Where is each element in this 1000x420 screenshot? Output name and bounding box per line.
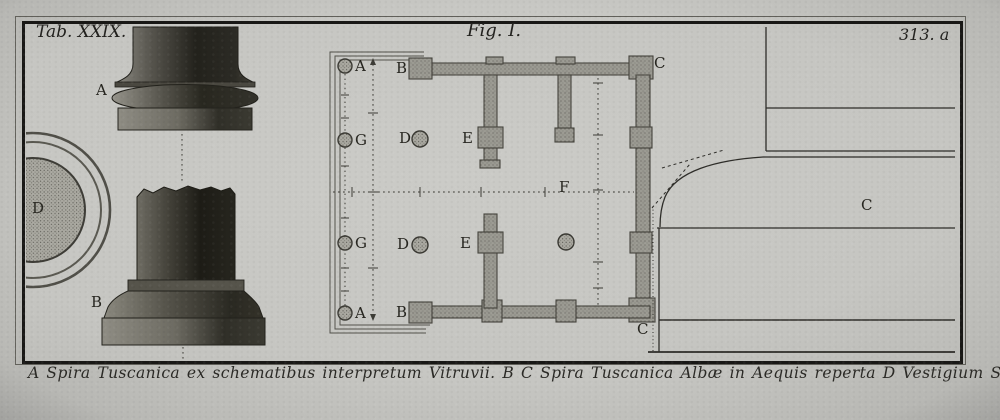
label-column-a: A <box>96 81 107 99</box>
plan-pilaster-top-2 <box>556 57 575 64</box>
label-plan-top-c: C <box>654 54 666 72</box>
plan-pilaster-top-1 <box>486 57 503 64</box>
vestigium-disc-figure <box>0 133 110 287</box>
column-a-shaft <box>115 27 255 83</box>
plan-wall-bottom <box>430 306 650 318</box>
engraving-photo: A B D A B C G D E F G D E A B C C Tab. X… <box>0 0 1000 420</box>
label-plan-d-upper: D <box>399 129 412 147</box>
label-plan-top-a: A <box>355 57 366 75</box>
base-profile-figure <box>648 27 955 352</box>
caption: A Spira Tuscanica ex schematibus interpr… <box>28 364 988 382</box>
column-b-figure <box>102 186 265 360</box>
plan-circle-g-upper <box>338 133 352 147</box>
plate-number: 313. a <box>899 25 949 44</box>
plan-circle-unlabeled <box>558 234 574 250</box>
label-plan-bottom-b: B <box>396 303 408 321</box>
plan-circle-a-bottom <box>338 306 352 320</box>
label-plan-bottom-c: C <box>637 320 649 338</box>
temple-plan-figure <box>330 52 655 333</box>
label-profile-c: C <box>861 196 873 214</box>
label-plan-bottom-a: A <box>355 304 366 322</box>
plan-wall-top <box>430 63 650 75</box>
plan-wall-end-b-bottom <box>409 302 432 323</box>
label-plan-e-upper: E <box>462 129 473 147</box>
column-b-base <box>104 291 263 318</box>
label-column-b: B <box>91 293 103 311</box>
plan-circle-a-top <box>338 59 352 73</box>
profile-tangent-2 <box>662 150 724 168</box>
label-vestigium-d: D <box>32 199 45 217</box>
plan-wall-interior-2 <box>558 75 571 130</box>
profile-torus-curve <box>660 157 763 227</box>
label-plan-center-f: F <box>559 178 570 196</box>
plan-wall-end-b-top <box>409 58 432 79</box>
label-plan-top-b: B <box>396 59 408 77</box>
plan-pier-right-lower <box>630 232 652 253</box>
engraving-artwork <box>0 0 1000 420</box>
tab-label: Tab. XXIX. <box>36 22 126 42</box>
column-a-torus <box>112 85 258 112</box>
plan-circle-d-upper <box>412 131 428 147</box>
plan-wall-right <box>636 75 650 308</box>
plan-wall-interior-2-foot <box>555 128 574 142</box>
column-b-fillet <box>128 280 244 291</box>
plan-walls <box>409 56 655 323</box>
plan-pier-e-lower <box>478 232 503 253</box>
plan-circle-g-lower <box>338 236 352 250</box>
column-b-plinth <box>102 318 265 345</box>
plan-pilaster-bottom <box>556 300 576 322</box>
plan-pier-right-upper <box>630 127 652 148</box>
plan-circle-d-lower <box>412 237 428 253</box>
plan-wall-interior-1-foot <box>480 160 500 168</box>
column-b-stump <box>137 186 235 280</box>
label-plan-g-upper: G <box>355 131 367 149</box>
column-a-plinth <box>118 108 252 130</box>
fig-label: Fig. I. <box>467 20 521 41</box>
label-plan-g-lower: G <box>355 234 367 252</box>
plan-pier-e-upper <box>478 127 503 148</box>
label-plan-d-lower: D <box>397 235 410 253</box>
label-plan-e-lower: E <box>460 234 471 252</box>
plan-wall-interior-3 <box>484 214 497 308</box>
column-a-figure <box>112 27 258 181</box>
plan-wall-interior-1 <box>484 75 497 163</box>
profile-tangent-1 <box>652 164 690 208</box>
